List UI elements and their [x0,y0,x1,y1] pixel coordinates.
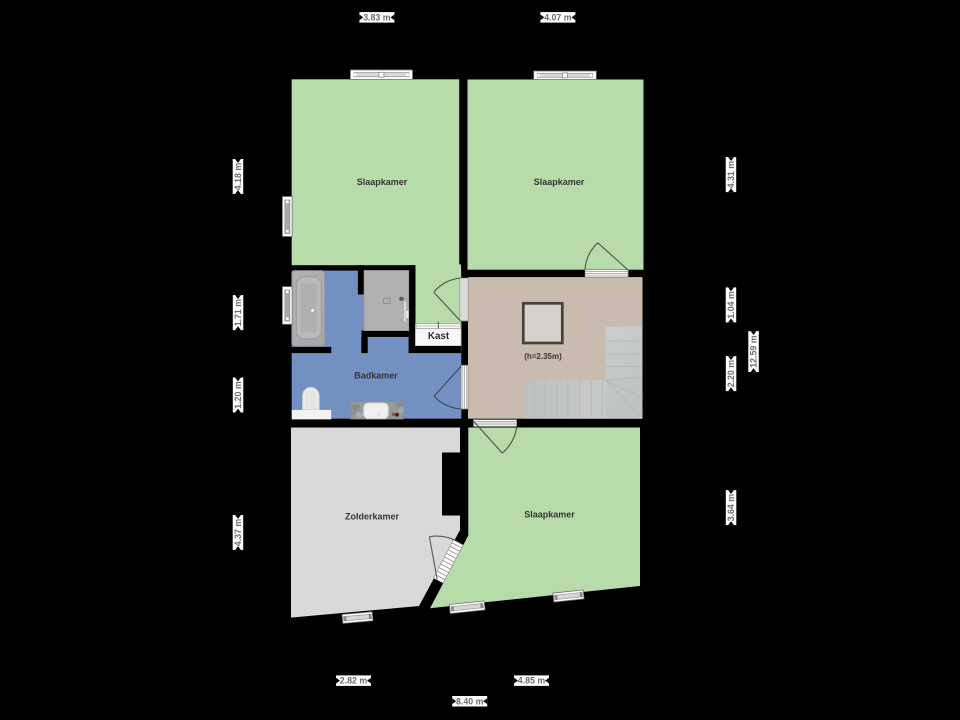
svg-text:Slaapkamer: Slaapkamer [534,177,585,187]
svg-text:1.04 m: 1.04 m [726,291,736,319]
svg-text:Badkamer: Badkamer [354,370,398,380]
svg-text:4.85 m: 4.85 m [518,676,546,686]
svg-text:Zolderkamer: Zolderkamer [345,511,400,521]
svg-text:2.82 m: 2.82 m [340,676,368,686]
svg-text:12.59 m: 12.59 m [749,335,759,367]
svg-text:3.64 m: 3.64 m [726,494,736,522]
svg-text:4.07 m: 4.07 m [544,13,572,23]
svg-text:3.83 m: 3.83 m [363,13,391,23]
svg-text:4.31 m: 4.31 m [726,161,736,189]
svg-text:Slaapkamer: Slaapkamer [357,177,408,187]
svg-text:(h=2.35m): (h=2.35m) [524,352,562,361]
svg-text:8.40 m: 8.40 m [456,696,484,706]
svg-text:Slaapkamer: Slaapkamer [524,509,575,519]
svg-text:4.18 m: 4.18 m [233,163,243,191]
svg-text:2.20 m: 2.20 m [726,360,736,388]
svg-text:1.20 m: 1.20 m [233,381,243,409]
svg-text:Kast: Kast [428,331,450,342]
svg-text:4.37 m: 4.37 m [233,519,243,547]
svg-text:1.71 m: 1.71 m [233,299,243,327]
